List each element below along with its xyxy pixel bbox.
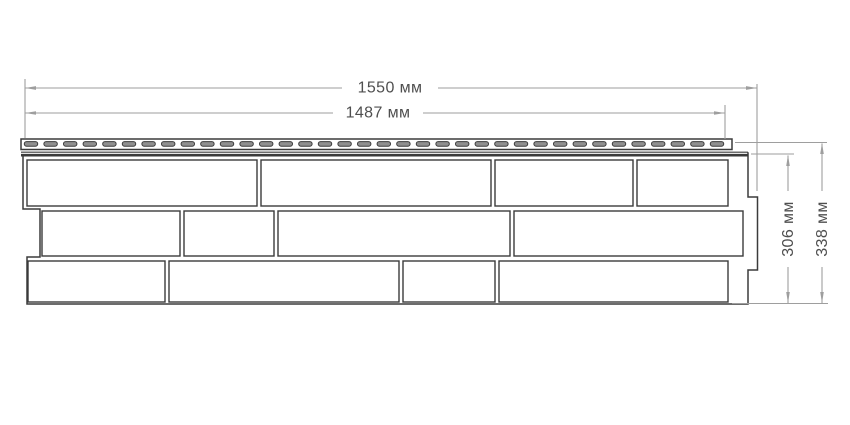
arrowhead xyxy=(786,155,790,166)
nail-slot xyxy=(279,142,292,147)
nail-slot xyxy=(554,142,567,147)
arrowhead xyxy=(820,292,824,303)
dim-label-height-total: 338 мм xyxy=(814,201,831,257)
nail-slot xyxy=(358,142,371,147)
nail-slot xyxy=(534,142,547,147)
dim-label-width-working: 1487 мм xyxy=(346,105,411,122)
arrowhead xyxy=(25,86,36,90)
nail-slot xyxy=(710,142,723,147)
nail-slot xyxy=(142,142,155,147)
drawing-canvas: 1550 мм 1487 мм 306 мм xyxy=(0,0,850,425)
brick-row-3 xyxy=(28,261,728,302)
nail-slot xyxy=(103,142,116,147)
brick xyxy=(28,261,165,302)
brick xyxy=(637,160,728,206)
nail-slot xyxy=(632,142,645,147)
nail-slot xyxy=(612,142,625,147)
nail-slot xyxy=(122,142,135,147)
arrowhead xyxy=(820,143,824,154)
brick-row-1 xyxy=(27,160,728,206)
brick xyxy=(403,261,495,302)
nail-slot xyxy=(201,142,214,147)
nail-slot xyxy=(456,142,469,147)
dim-label-height-working: 306 мм xyxy=(780,201,797,257)
nail-slot xyxy=(64,142,77,147)
brick xyxy=(184,211,274,256)
nail-slot xyxy=(44,142,57,147)
nail-slot xyxy=(593,142,606,147)
nail-slot xyxy=(671,142,684,147)
nail-slot xyxy=(377,142,390,147)
brick xyxy=(42,211,180,256)
arrowhead xyxy=(25,111,36,115)
brick-row-2 xyxy=(42,211,743,256)
brick xyxy=(499,261,728,302)
nail-slot xyxy=(83,142,96,147)
nail-slot xyxy=(495,142,508,147)
arrowhead xyxy=(746,86,757,90)
brick xyxy=(514,211,743,256)
brick xyxy=(27,160,257,206)
brick xyxy=(169,261,399,302)
nail-slot xyxy=(475,142,488,147)
nail-slot xyxy=(416,142,429,147)
nail-slot xyxy=(240,142,253,147)
arrowhead xyxy=(714,111,725,115)
arrowhead xyxy=(786,292,790,303)
dim-width-working: 1487 мм xyxy=(25,105,725,140)
brick xyxy=(495,160,633,206)
nail-slot xyxy=(397,142,410,147)
nail-slot xyxy=(338,142,351,147)
nail-slot xyxy=(691,142,704,147)
nail-slot xyxy=(318,142,331,147)
nail-slot xyxy=(573,142,586,147)
brick xyxy=(278,211,510,256)
nail-slot xyxy=(162,142,175,147)
panel-drawing: 1550 мм 1487 мм 306 мм xyxy=(0,0,850,425)
nail-slot xyxy=(220,142,233,147)
nail-slot xyxy=(260,142,273,147)
nail-slot xyxy=(299,142,312,147)
nail-slot xyxy=(652,142,665,147)
nail-slot xyxy=(181,142,194,147)
nail-slot xyxy=(436,142,449,147)
brick xyxy=(261,160,491,206)
dim-label-width-total: 1550 мм xyxy=(358,80,423,97)
nail-slot xyxy=(514,142,527,147)
panel xyxy=(21,139,758,304)
nail-slot xyxy=(24,142,37,147)
